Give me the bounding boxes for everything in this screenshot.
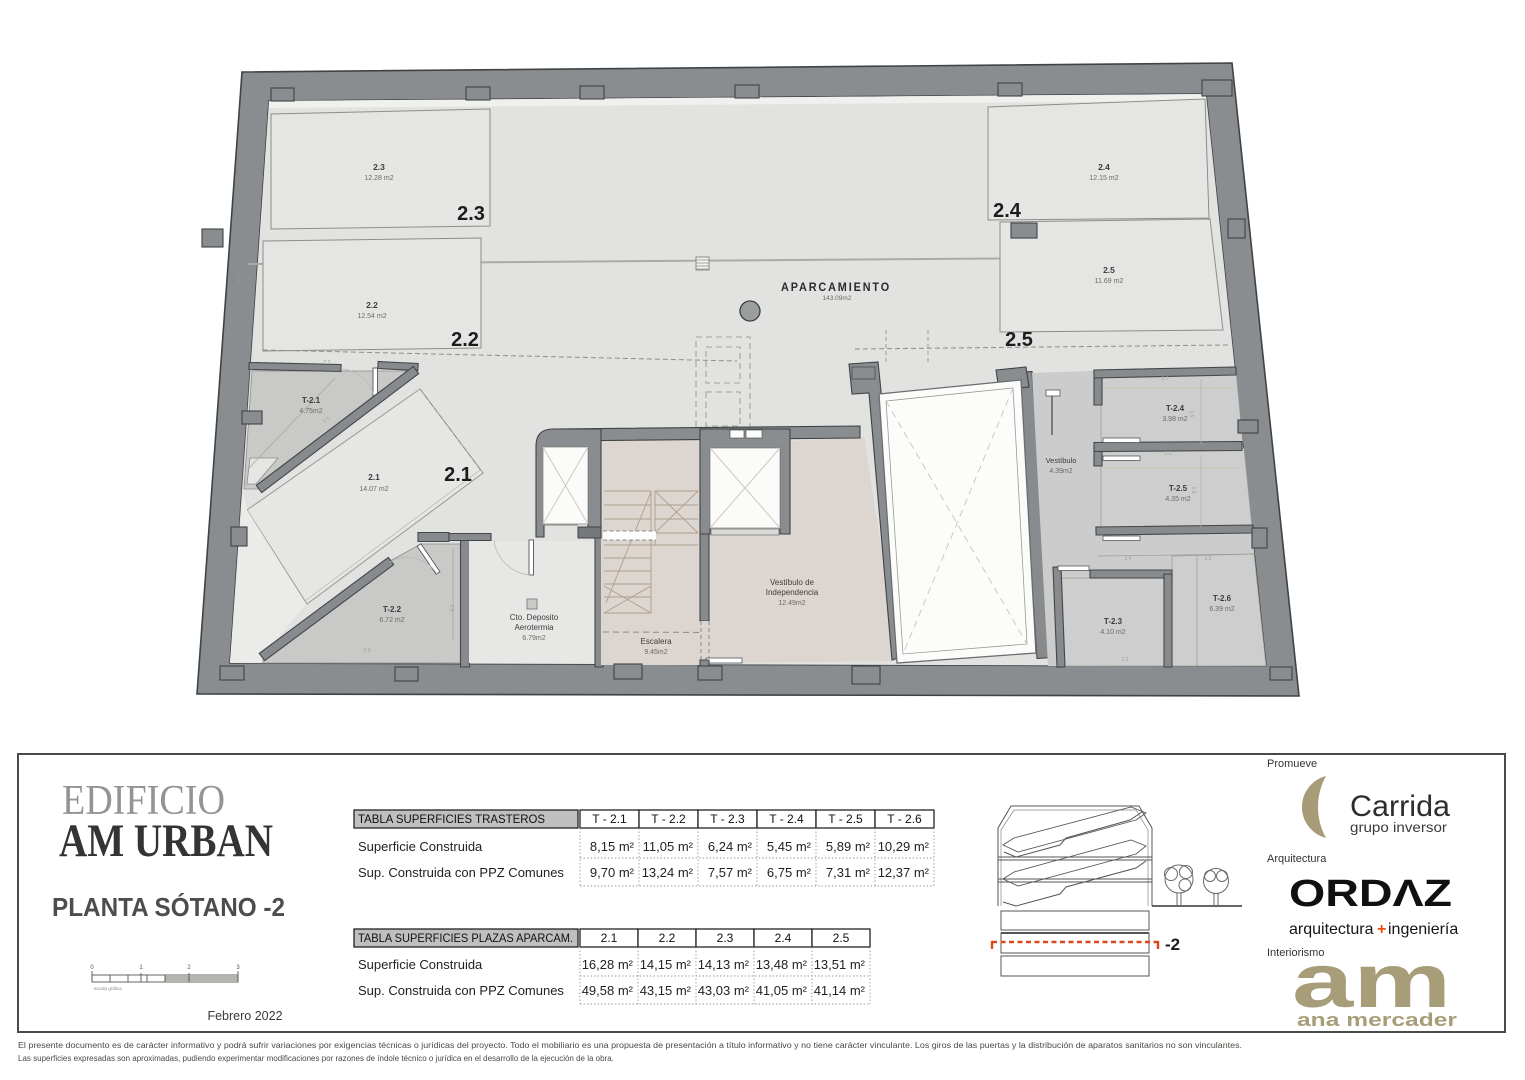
svg-text:11.69 m2: 11.69 m2 — [1095, 278, 1124, 285]
svg-text:12.28 m2: 12.28 m2 — [364, 175, 393, 182]
svg-text:12,37 m²: 12,37 m² — [878, 865, 930, 880]
svg-text:2.2: 2.2 — [1165, 451, 1172, 457]
svg-text:ana mercader: ana mercader — [1297, 1010, 1457, 1030]
svg-text:13,51 m²: 13,51 m² — [814, 957, 866, 972]
svg-text:3.9: 3.9 — [364, 648, 371, 654]
svg-text:8,15 m²: 8,15 m² — [590, 839, 635, 854]
svg-text:T - 2.2: T - 2.2 — [651, 812, 686, 826]
svg-text:Las superficies expresadas son: Las superficies expresadas son aproximad… — [18, 1054, 614, 1063]
svg-text:2.2: 2.2 — [659, 931, 676, 945]
svg-text:5,89 m²: 5,89 m² — [826, 839, 871, 854]
svg-text:Febrero 2022: Febrero 2022 — [207, 1009, 282, 1023]
svg-text:7,31 m²: 7,31 m² — [826, 865, 871, 880]
svg-text:1.4: 1.4 — [1125, 556, 1132, 562]
svg-text:4.75m2: 4.75m2 — [299, 408, 322, 415]
svg-text:T-2.6: T-2.6 — [1213, 594, 1232, 603]
svg-text:+: + — [1377, 921, 1386, 938]
svg-text:grupo inversor: grupo inversor — [1350, 819, 1447, 835]
svg-text:2.2: 2.2 — [324, 360, 331, 366]
svg-text:3.98 m2: 3.98 m2 — [1162, 416, 1187, 423]
svg-text:6.39 m2: 6.39 m2 — [1209, 606, 1234, 613]
svg-text:2.1: 2.1 — [368, 472, 380, 482]
svg-text:2.4: 2.4 — [1098, 162, 1110, 172]
svg-text:12.49m2: 12.49m2 — [778, 600, 805, 607]
svg-text:4.10 m2: 4.10 m2 — [1100, 629, 1125, 636]
svg-text:6,24 m²: 6,24 m² — [708, 839, 753, 854]
svg-text:2.5: 2.5 — [833, 931, 850, 945]
svg-text:49,58 m²: 49,58 m² — [582, 983, 634, 998]
svg-text:T - 2.6: T - 2.6 — [887, 812, 922, 826]
svg-text:Aerotermia: Aerotermia — [514, 623, 554, 632]
svg-text:4.39m2: 4.39m2 — [1049, 468, 1072, 475]
svg-text:2.7: 2.7 — [1162, 376, 1169, 382]
svg-text:9.45m2: 9.45m2 — [644, 649, 667, 656]
svg-text:PLANTA SÓTANO -2: PLANTA SÓTANO -2 — [52, 892, 285, 922]
svg-text:43,15 m²: 43,15 m² — [640, 983, 692, 998]
svg-text:4.35 m2: 4.35 m2 — [1165, 496, 1190, 503]
svg-text:TABLA SUPERFICIES TRASTEROS: TABLA SUPERFICIES TRASTEROS — [358, 812, 545, 826]
svg-text:13,48 m²: 13,48 m² — [756, 957, 808, 972]
svg-text:2.1: 2.1 — [444, 464, 472, 486]
svg-text:14,13 m²: 14,13 m² — [698, 957, 750, 972]
svg-text:2.2: 2.2 — [451, 329, 479, 351]
svg-text:1.2: 1.2 — [1205, 556, 1212, 562]
svg-text:6.72 m2: 6.72 m2 — [379, 617, 404, 624]
svg-text:41,14 m²: 41,14 m² — [814, 983, 866, 998]
svg-text:T-2.3: T-2.3 — [1104, 617, 1123, 626]
svg-text:2.4: 2.4 — [993, 200, 1022, 222]
svg-text:-2: -2 — [1165, 935, 1180, 954]
svg-text:10,29 m²: 10,29 m² — [878, 839, 930, 854]
svg-text:ORDΛZ: ORDΛZ — [1289, 873, 1452, 915]
svg-text:2.3: 2.3 — [717, 931, 734, 945]
svg-text:14,15 m²: 14,15 m² — [640, 957, 692, 972]
svg-text:T-2.5: T-2.5 — [1169, 484, 1188, 493]
svg-text:16,28 m²: 16,28 m² — [582, 957, 634, 972]
svg-text:12.54 m2: 12.54 m2 — [357, 313, 386, 320]
svg-text:143.09m2: 143.09m2 — [823, 295, 852, 302]
svg-text:5,45 m²: 5,45 m² — [767, 839, 812, 854]
svg-text:6.79m2: 6.79m2 — [522, 635, 545, 642]
svg-text:Superficie Construida: Superficie Construida — [358, 839, 483, 854]
svg-text:Sup. Construida con PPZ Comune: Sup. Construida con PPZ Comunes — [358, 983, 564, 998]
svg-text:2.2: 2.2 — [1122, 657, 1129, 663]
svg-text:Independencia: Independencia — [766, 588, 819, 597]
svg-text:T - 2.3: T - 2.3 — [710, 812, 745, 826]
svg-text:Vestíbulo de: Vestíbulo de — [770, 578, 815, 587]
svg-text:T-2.2: T-2.2 — [383, 605, 402, 614]
svg-text:13,24 m²: 13,24 m² — [642, 865, 694, 880]
svg-text:43,03 m²: 43,03 m² — [698, 983, 750, 998]
svg-text:T-2.1: T-2.1 — [302, 396, 321, 405]
svg-text:Escalera: Escalera — [640, 637, 672, 646]
svg-text:Arquitectura: Arquitectura — [1267, 853, 1327, 865]
svg-text:arquitectura: arquitectura — [1289, 921, 1374, 938]
svg-text:APARCAMIENTO: APARCAMIENTO — [781, 282, 891, 294]
svg-text:Vestíbulo: Vestíbulo — [1046, 456, 1077, 465]
svg-text:7,57 m²: 7,57 m² — [708, 865, 753, 880]
svg-text:Superficie Construida: Superficie Construida — [358, 957, 483, 972]
svg-text:T - 2.5: T - 2.5 — [828, 812, 863, 826]
svg-text:ingeniería: ingeniería — [1388, 921, 1458, 938]
svg-text:T - 2.4: T - 2.4 — [769, 812, 804, 826]
svg-text:T - 2.1: T - 2.1 — [592, 812, 627, 826]
svg-text:2.4: 2.4 — [775, 931, 792, 945]
svg-text:Cto. Deposito: Cto. Deposito — [510, 613, 559, 622]
svg-text:2.3: 2.3 — [373, 162, 385, 172]
svg-text:AM URBAN: AM URBAN — [59, 815, 273, 867]
svg-text:TABLA SUPERFICIES PLAZAS APARC: TABLA SUPERFICIES PLAZAS APARCAM. — [358, 931, 573, 945]
svg-text:El presente documento es de ca: El presente documento es de carácter inf… — [18, 1041, 1242, 1050]
svg-text:2.1: 2.1 — [601, 931, 618, 945]
svg-text:2.5: 2.5 — [1103, 265, 1115, 275]
svg-text:11,05 m²: 11,05 m² — [643, 839, 694, 854]
svg-text:1.5: 1.5 — [1190, 487, 1196, 494]
svg-text:6,75 m²: 6,75 m² — [767, 865, 812, 880]
svg-text:escala gráfica: escala gráfica — [94, 986, 122, 991]
svg-text:12.15 m2: 12.15 m2 — [1089, 175, 1118, 182]
svg-text:T-2.4: T-2.4 — [1166, 404, 1185, 413]
svg-text:2.8: 2.8 — [448, 605, 454, 612]
svg-text:41,05 m²: 41,05 m² — [756, 983, 808, 998]
svg-text:2.2: 2.2 — [366, 300, 378, 310]
svg-text:2.3: 2.3 — [457, 203, 485, 225]
svg-text:Promueve: Promueve — [1267, 758, 1317, 770]
svg-text:1.5: 1.5 — [1188, 411, 1194, 418]
svg-text:Sup. Construida con PPZ Comune: Sup. Construida con PPZ Comunes — [358, 865, 564, 880]
svg-text:9,70 m²: 9,70 m² — [590, 865, 635, 880]
svg-text:14.07 m2: 14.07 m2 — [359, 486, 388, 493]
